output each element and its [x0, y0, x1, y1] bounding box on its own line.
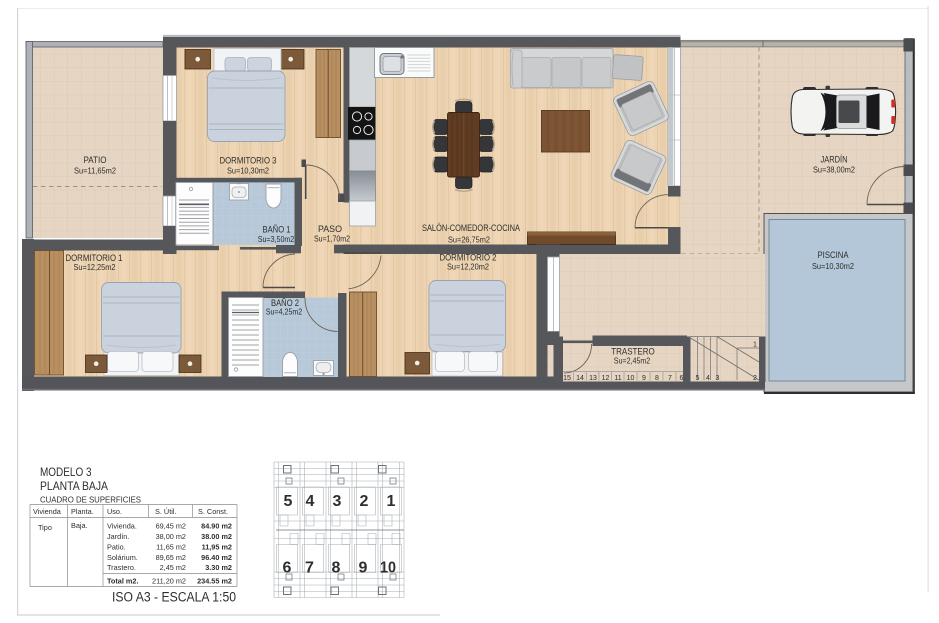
svg-text:Jardín.: Jardín.	[107, 532, 129, 541]
svg-text:9: 9	[359, 560, 368, 577]
svg-text:10: 10	[380, 560, 396, 577]
svg-text:SALÓN-COMEDOR-COCINA: SALÓN-COMEDOR-COCINA	[422, 223, 520, 233]
svg-text:DORMITORIO 3: DORMITORIO 3	[220, 156, 277, 166]
svg-text:8: 8	[655, 375, 659, 382]
svg-text:3: 3	[333, 493, 342, 510]
svg-text:9: 9	[642, 375, 646, 382]
svg-text:11,95 m2: 11,95 m2	[202, 543, 232, 552]
svg-text:Vivienda.: Vivienda.	[107, 522, 137, 531]
svg-text:2: 2	[753, 375, 757, 382]
svg-text:ISO A3 - ESCALA 1:50: ISO A3 - ESCALA 1:50	[112, 590, 236, 605]
svg-text:10: 10	[627, 375, 635, 382]
svg-text:3.30 m2: 3.30 m2	[205, 563, 232, 572]
svg-text:84.90 m2: 84.90 m2	[201, 522, 232, 531]
svg-text:69,45 m2: 69,45 m2	[156, 522, 186, 531]
svg-text:4: 4	[306, 493, 315, 510]
svg-text:Su=3,50m2: Su=3,50m2	[258, 235, 295, 244]
svg-text:Su=4,25m2: Su=4,25m2	[266, 308, 303, 317]
svg-text:BAÑO 1: BAÑO 1	[263, 225, 291, 235]
svg-text:Planta.: Planta.	[71, 507, 94, 516]
svg-text:Total m2.: Total m2.	[107, 577, 139, 586]
svg-text:2: 2	[360, 493, 369, 510]
svg-text:Su=11,65m2: Su=11,65m2	[74, 167, 117, 176]
svg-text:Patio.: Patio.	[107, 543, 126, 552]
svg-text:8: 8	[332, 560, 341, 577]
svg-text:Vivienda: Vivienda	[33, 507, 62, 516]
svg-text:Su=12,20m2: Su=12,20m2	[447, 263, 490, 272]
svg-text:DORMITORIO 1: DORMITORIO 1	[66, 253, 123, 263]
svg-text:Su=1,70m2: Su=1,70m2	[314, 235, 350, 244]
svg-text:4: 4	[706, 375, 710, 382]
svg-text:89,65 m2: 89,65 m2	[156, 553, 186, 562]
svg-text:S. Const.: S. Const.	[198, 507, 228, 516]
svg-text:Tipo: Tipo	[38, 523, 52, 532]
svg-text:S. Útil.: S. Útil.	[155, 507, 177, 516]
svg-text:14: 14	[576, 375, 584, 382]
svg-text:Su=12,25m2: Su=12,25m2	[74, 263, 117, 272]
svg-text:3: 3	[716, 375, 720, 382]
svg-text:Solárium.: Solárium.	[107, 553, 138, 562]
svg-text:Su=26,75m2: Su=26,75m2	[448, 236, 491, 245]
svg-text:Uso.: Uso.	[107, 507, 122, 516]
svg-text:234.55 m2: 234.55 m2	[197, 577, 232, 586]
svg-text:Su=10,30m2: Su=10,30m2	[227, 167, 270, 176]
svg-text:13: 13	[589, 375, 597, 382]
svg-text:PASO: PASO	[318, 224, 342, 234]
svg-text:CUADRO DE SUPERFICIES: CUADRO DE SUPERFICIES	[40, 496, 142, 505]
svg-text:PLANTA BAJA: PLANTA BAJA	[40, 479, 108, 493]
svg-text:7: 7	[305, 560, 314, 577]
svg-text:11,65 m2: 11,65 m2	[156, 543, 186, 552]
svg-text:15: 15	[563, 375, 571, 382]
svg-text:5: 5	[284, 493, 293, 510]
svg-text:211,20 m2: 211,20 m2	[152, 577, 186, 586]
svg-text:PATIO: PATIO	[84, 155, 107, 165]
svg-text:Su=2,45m2: Su=2,45m2	[614, 357, 651, 366]
svg-text:7: 7	[668, 375, 672, 382]
svg-text:Su=10,30m2: Su=10,30m2	[812, 262, 855, 271]
svg-text:2,45 m2: 2,45 m2	[160, 563, 186, 572]
svg-text:MODELO 3: MODELO 3	[40, 465, 92, 479]
svg-text:Baja.: Baja.	[71, 521, 88, 530]
svg-text:5: 5	[696, 375, 700, 382]
svg-text:11: 11	[614, 375, 621, 382]
svg-text:Trastero.: Trastero.	[107, 563, 136, 572]
svg-text:Su=38,00m2: Su=38,00m2	[813, 166, 856, 175]
svg-text:1: 1	[753, 342, 757, 349]
svg-text:PISCINA: PISCINA	[818, 250, 849, 260]
svg-text:DORMITORIO 2: DORMITORIO 2	[440, 253, 497, 263]
svg-text:38.00 m2: 38.00 m2	[201, 532, 232, 541]
svg-text:38,00 m2: 38,00 m2	[156, 532, 186, 541]
svg-text:96.40 m2: 96.40 m2	[201, 553, 232, 562]
svg-text:6: 6	[680, 375, 684, 382]
svg-text:12: 12	[602, 375, 610, 382]
svg-text:JARDÍN: JARDÍN	[821, 155, 848, 165]
svg-text:BAÑO 2: BAÑO 2	[271, 298, 299, 308]
svg-text:1: 1	[387, 493, 396, 510]
svg-text:6: 6	[283, 560, 292, 577]
svg-text:TRASTERO: TRASTERO	[611, 347, 655, 357]
